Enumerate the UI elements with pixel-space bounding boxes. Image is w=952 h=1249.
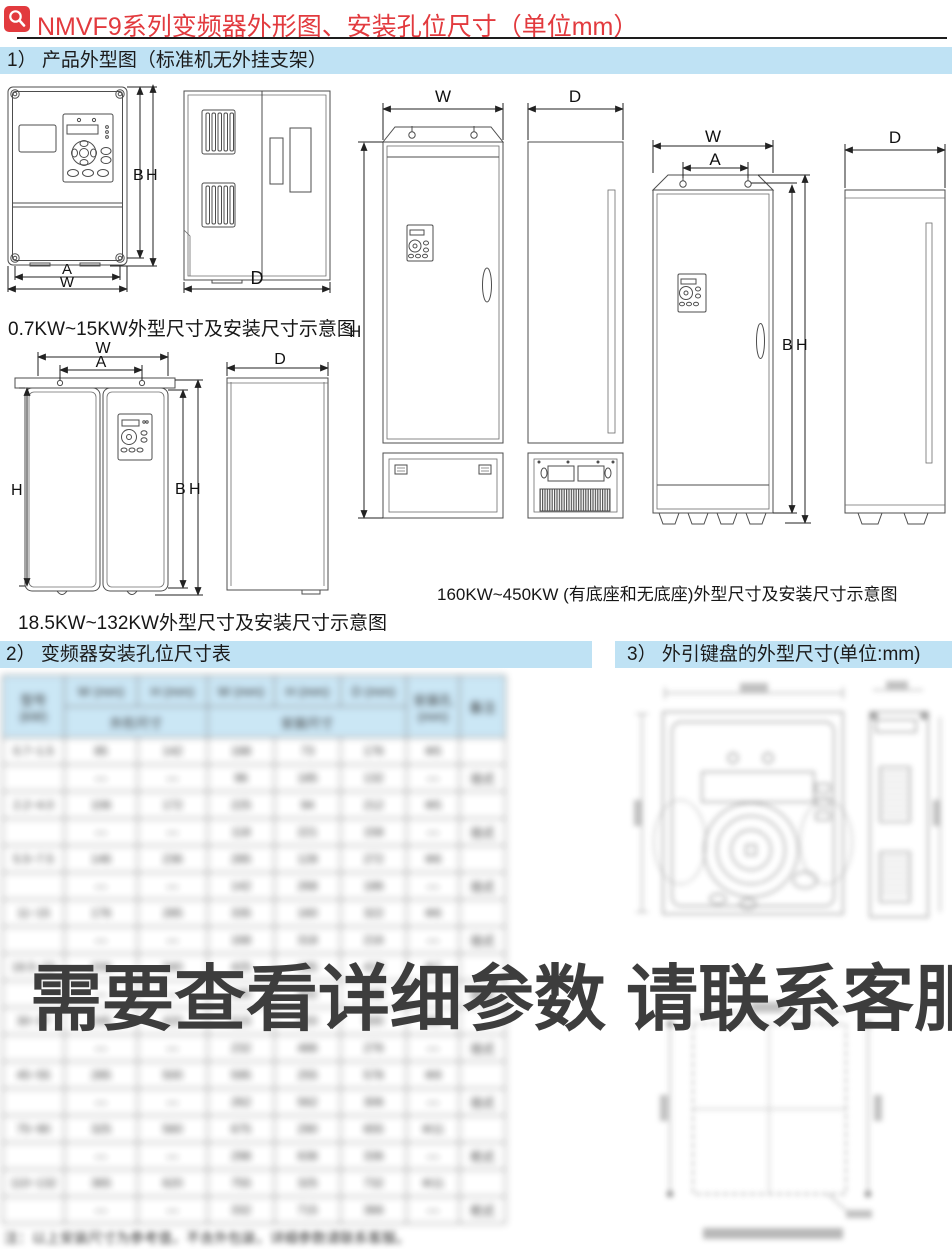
table-header-c3: H (mm) xyxy=(138,676,208,707)
table-header-c8: 备注 xyxy=(460,676,506,738)
table-row: ——142268186—挂式 xyxy=(3,873,506,900)
dim-label-b: B xyxy=(133,167,144,184)
table-header-c5: H (mm) xyxy=(275,676,341,707)
dim-label-h: H xyxy=(349,322,361,341)
table-row: ——96185132—挂式 xyxy=(3,765,506,792)
dim-label-h: H xyxy=(146,167,158,184)
drawing-mid-inverter-side: D xyxy=(222,352,340,602)
table-row: 2.2~4.010617222594212Φ5 xyxy=(3,792,506,819)
table-row: 0.7~1.58514218873176Φ5 xyxy=(3,738,506,765)
page: NMVF9系列变频器外形图、安装孔位尺寸（单位mm） 1） 产品外型图（标准机无… xyxy=(0,0,952,1249)
footnote: 注：以上安装尺寸为参考值，不含外包装，详细参数请联系客服。 xyxy=(4,1228,434,1248)
title-bar: NMVF9系列变频器外形图、安装孔位尺寸（单位mm） xyxy=(0,0,952,46)
section2-banner: 2） 变频器安装孔位尺寸表 xyxy=(0,641,592,668)
table-row: ——262562306—挂式 xyxy=(3,1089,506,1116)
table-header-c6: D (mm) xyxy=(341,676,407,707)
section1-banner: 1） 产品外型图（标准机无外挂支架） xyxy=(0,47,952,74)
drawing-cabinet-base-side: D xyxy=(518,85,630,533)
dim-label-w: W xyxy=(60,274,75,291)
dim-label-d: D xyxy=(251,268,264,288)
title-rule xyxy=(17,37,947,39)
drawing-cabinet-base-front: W H xyxy=(348,85,520,533)
table-header-model: 型号 (kW) xyxy=(3,676,65,738)
table-row: ——298638336—柜式 xyxy=(3,1143,506,1170)
caption-mid-range: 18.5KW~132KW外型尺寸及安装尺寸示意图 xyxy=(18,608,387,635)
table-row: 45~55285500595255578Φ9 xyxy=(3,1062,506,1089)
dim-label-h: H xyxy=(189,481,201,498)
table-header-c2: W (mm) xyxy=(65,676,138,707)
dim-label-a: A xyxy=(709,150,721,169)
drawing-small-inverter-side: D xyxy=(172,80,342,308)
table-header-c4: W (mm) xyxy=(208,676,275,707)
table-header-group-right: 安装尺寸 xyxy=(208,707,407,738)
dim-label-w: W xyxy=(435,87,451,106)
table-row: ——118221158—挂式 xyxy=(3,819,506,846)
watermark-text: 需要查看详细参数 请联系客服 xyxy=(30,940,952,1045)
drawing-cabinet-nobase-side: D xyxy=(838,128,952,530)
table-row: 11~15176285335160322Φ6 xyxy=(3,900,506,927)
table-row: ——332715366—柜式 xyxy=(3,1197,506,1224)
table-row: 5.5~7.5146236285128272Φ6 xyxy=(3,846,506,873)
table-row: 75~90325560675290655Φ11 xyxy=(3,1116,506,1143)
dim-label-h: H xyxy=(796,337,808,354)
mounting-table-header: 型号 (kW) W (mm) H (mm) W (mm) H (mm) D (m… xyxy=(3,676,506,738)
drawing-small-inverter-front: A W B H xyxy=(0,80,170,308)
magnifier-icon xyxy=(4,6,30,32)
dim-label-b: B xyxy=(782,337,793,354)
section3-banner: 3） 外引键盘的外型尺寸(单位:mm) xyxy=(615,641,952,668)
caption-large-range: 160KW~450KW (有底座和无底座)外型尺寸及安装尺寸示意图 xyxy=(437,580,897,605)
dim-label-b: B xyxy=(175,481,186,498)
table-header-group-left: 外形尺寸 xyxy=(65,707,208,738)
dim-label-d: D xyxy=(569,87,581,106)
table-row: 110~132365620755325732Φ11 xyxy=(3,1170,506,1197)
dim-label-w: W xyxy=(705,128,721,146)
drawing-mid-inverter-front: W A H B H xyxy=(5,338,220,602)
drawing-cabinet-nobase-front: W A B H xyxy=(645,128,815,530)
dim-label-d: D xyxy=(889,128,901,147)
dim-label-a: A xyxy=(96,354,107,371)
table-header-c7: 安装孔(mm) xyxy=(407,676,460,738)
dim-label-h: H xyxy=(11,482,23,499)
dim-label-d: D xyxy=(274,352,286,368)
caption-small-range: 0.7KW~15KW外型尺寸及安装尺寸示意图 xyxy=(8,314,356,341)
